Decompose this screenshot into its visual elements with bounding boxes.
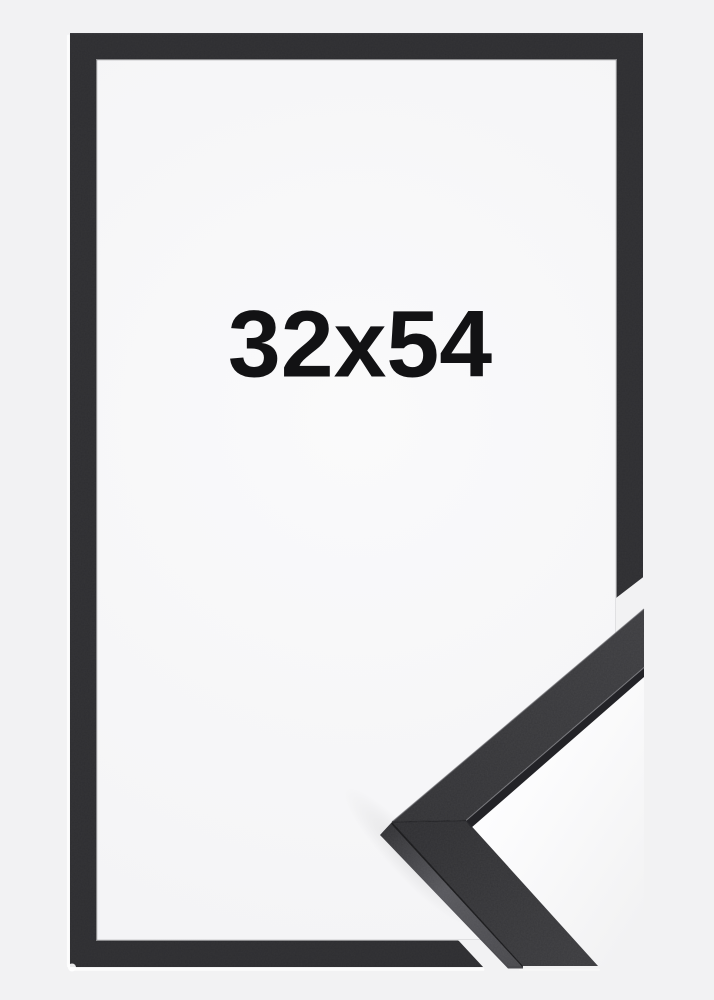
size-label: 32x54: [228, 298, 492, 393]
frame-photo: [0, 0, 714, 1000]
product-image: 32x54: [0, 0, 714, 1000]
corner-highlight-dot: [68, 964, 76, 972]
